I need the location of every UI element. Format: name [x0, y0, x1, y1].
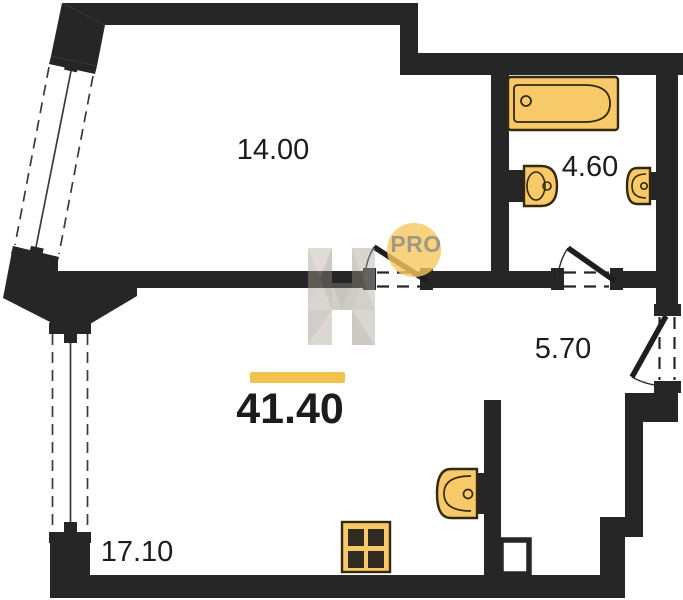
bathtub [508, 77, 618, 130]
wall-corner-left-middle [3, 246, 137, 334]
door-bathroom-leaf [568, 248, 615, 281]
wall-bathroom-left [491, 73, 509, 288]
wall-right-block [625, 393, 678, 422]
stove-burner-3 [348, 551, 364, 568]
watermark-letter [308, 248, 375, 345]
window-slant-outer-line [15, 67, 49, 245]
wall-right-step [600, 517, 643, 537]
window-left-sill-bottom [49, 532, 91, 543]
kitchen-sink [437, 469, 485, 518]
wall-interior-3 [610, 271, 656, 288]
wall-top-right [400, 53, 683, 75]
stove-burner-2 [368, 529, 384, 546]
door-entry-leaf [632, 316, 666, 377]
wall-right-bathroom [656, 75, 678, 305]
wall-bottom [50, 575, 625, 598]
door-entry [632, 316, 675, 386]
total-area-label: 41.40 [236, 385, 344, 433]
bathroom-area-label: 4.60 [562, 151, 618, 183]
stove [342, 522, 390, 572]
wall-top-step [400, 3, 418, 55]
floor-plan: PRO 14.00 4.60 5.70 17.10 41.40 [0, 0, 683, 600]
wall-left-bottom-block [50, 543, 90, 598]
entry-door-jamb-top [654, 304, 681, 316]
toilet-bowl [524, 166, 557, 206]
toilet-tank [509, 170, 524, 202]
toilet [509, 166, 557, 206]
bathroom-sink [627, 168, 657, 204]
door-bathroom [558, 248, 615, 287]
total-area-accent-bar [250, 372, 345, 383]
stove-burner-1 [348, 529, 364, 546]
stove-burner-4 [368, 551, 384, 568]
kitchen-area-label: 17.10 [101, 536, 174, 568]
hallway-area-label: 5.70 [535, 333, 591, 365]
ventilation-shaft [501, 540, 529, 574]
watermark-pro-text: PRO [390, 231, 441, 257]
window-left-tab-top [64, 334, 77, 343]
window-left-tab-bottom [64, 522, 77, 532]
room-area-label: 14.00 [237, 134, 310, 166]
entry-door-jamb-bottom [654, 381, 681, 393]
watermark-badge: PRO [387, 223, 442, 277]
floor-plan-svg: PRO 14.00 4.60 5.70 17.10 41.40 [0, 0, 683, 600]
wall-top [62, 3, 418, 25]
